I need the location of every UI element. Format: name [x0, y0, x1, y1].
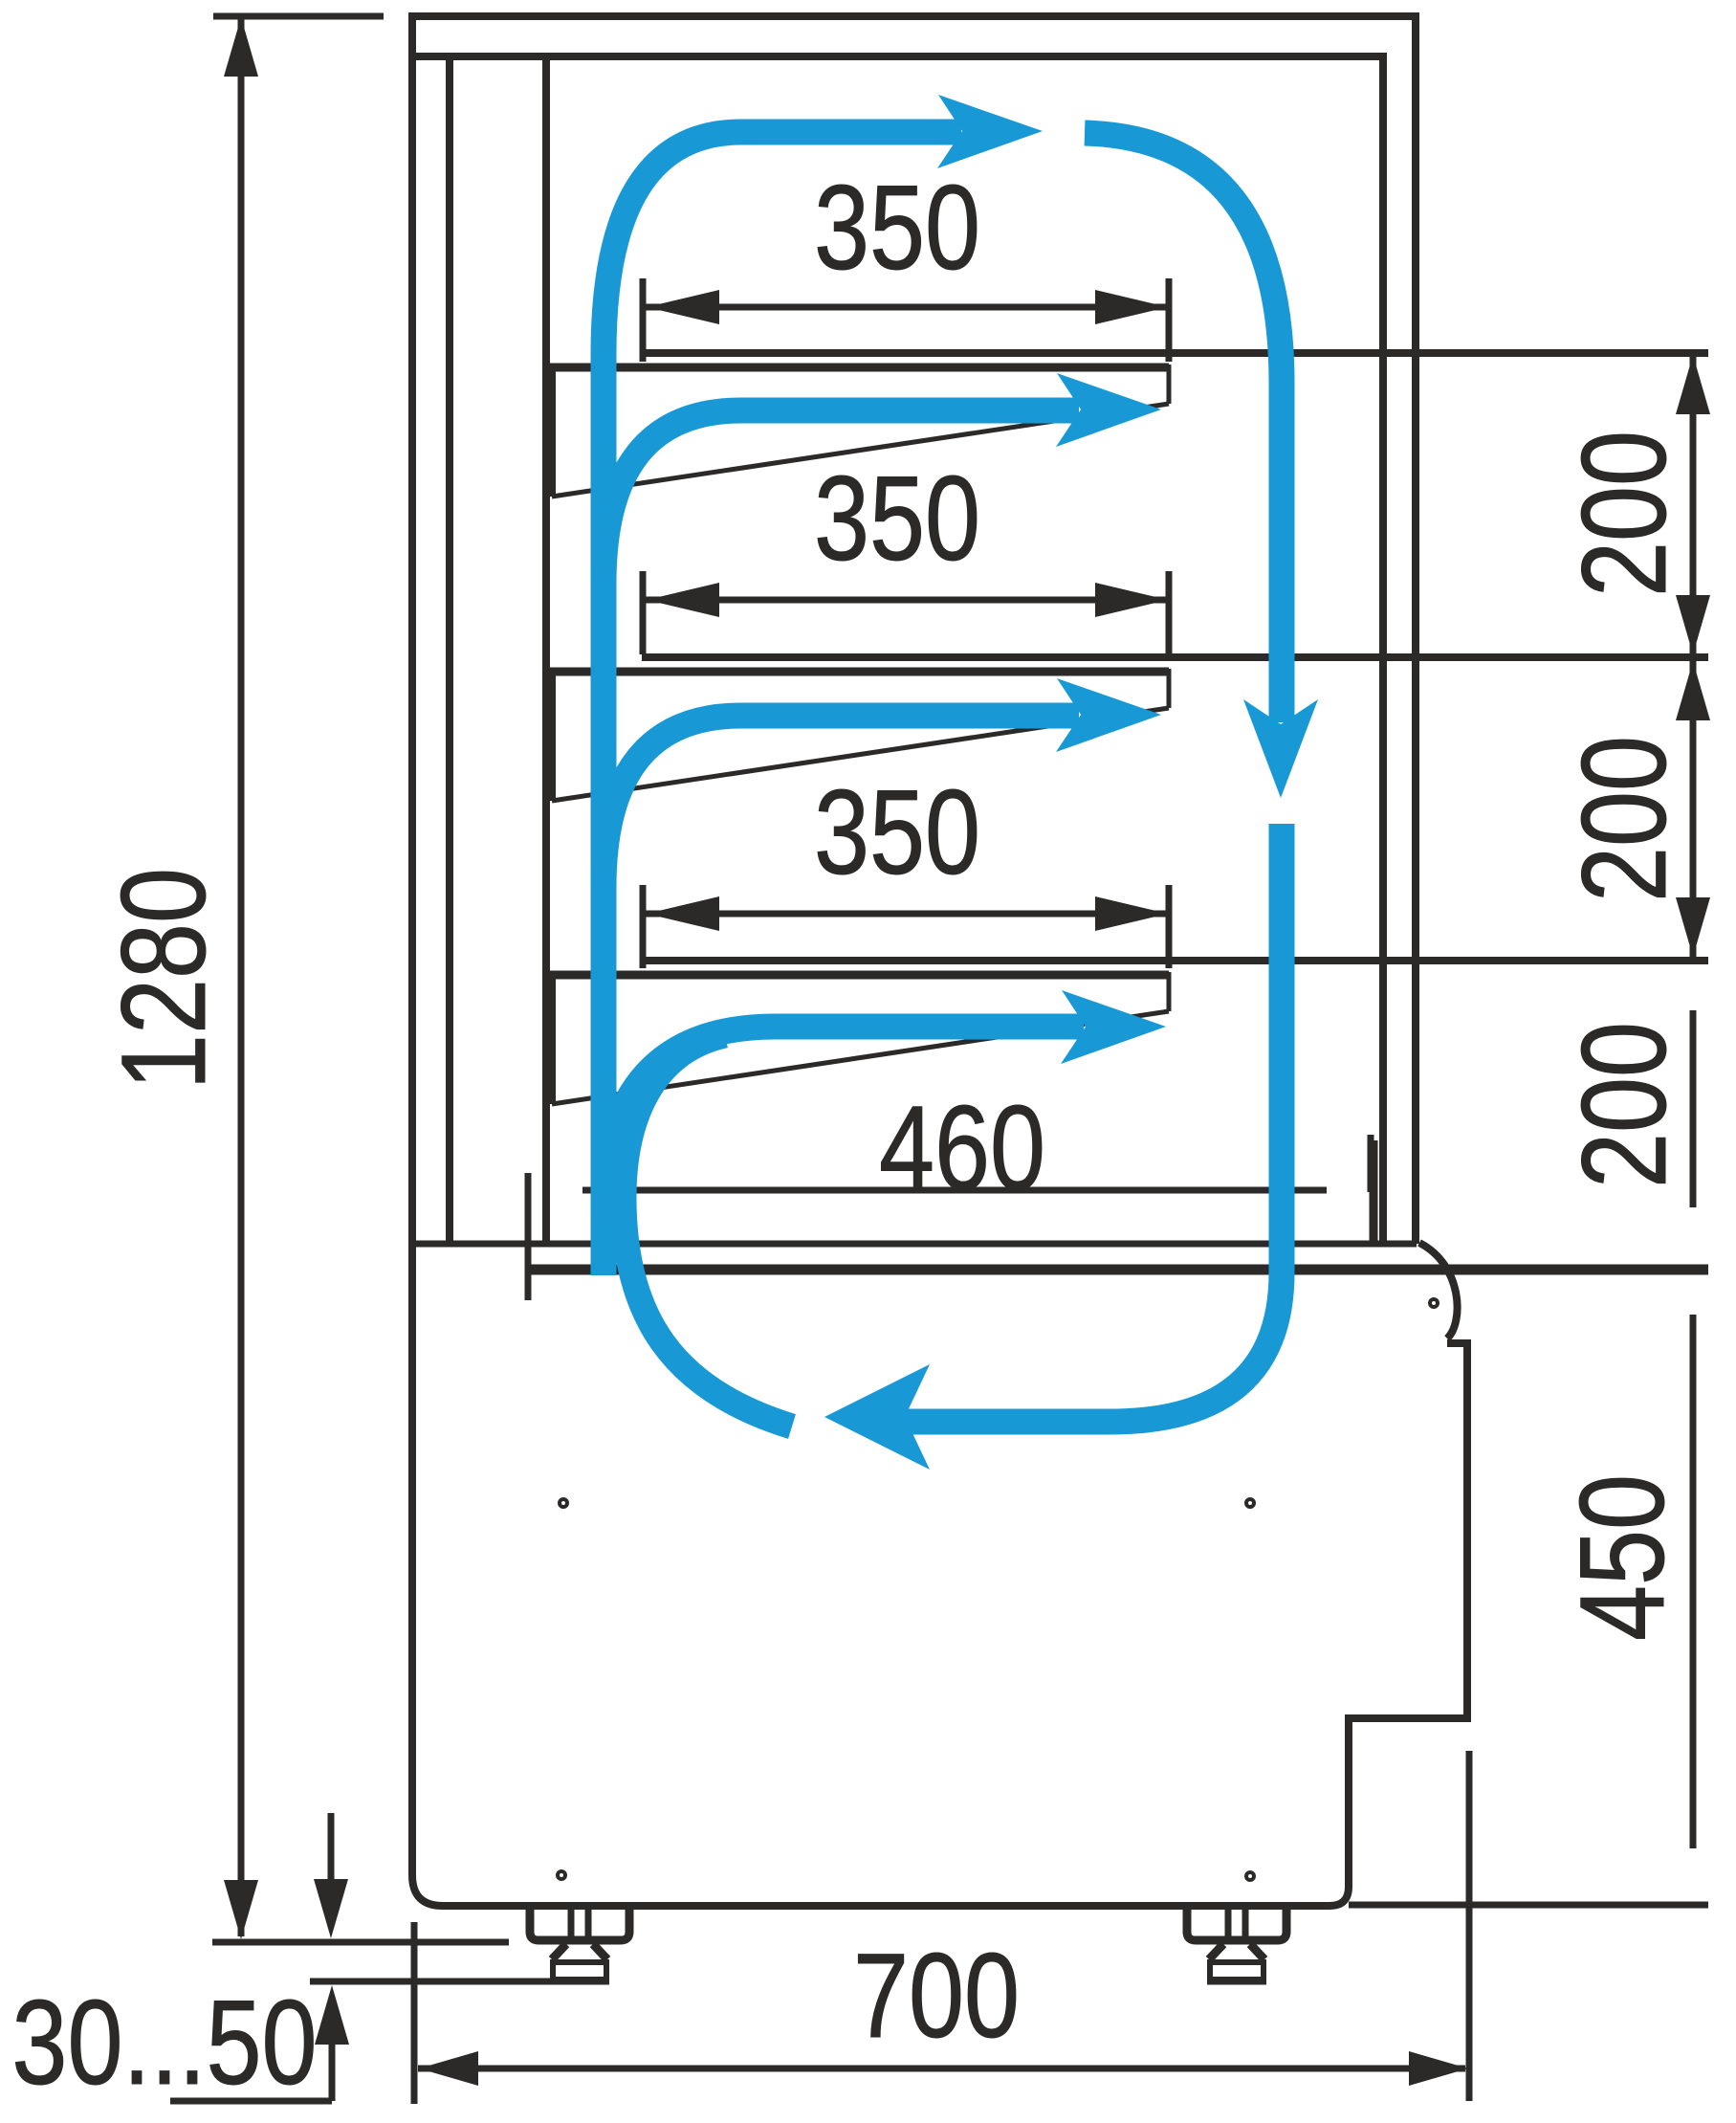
svg-text:700: 700 [853, 1930, 1020, 2063]
svg-text:200: 200 [1558, 1022, 1691, 1188]
svg-text:350: 350 [814, 766, 980, 899]
svg-text:1280: 1280 [98, 868, 231, 1090]
svg-text:200: 200 [1558, 431, 1691, 597]
svg-text:460: 460 [879, 1082, 1045, 1215]
svg-text:200: 200 [1558, 736, 1691, 902]
svg-text:30...50: 30...50 [11, 1977, 317, 2110]
svg-text:350: 350 [814, 162, 980, 295]
svg-text:450: 450 [1556, 1474, 1689, 1641]
svg-text:350: 350 [814, 453, 980, 586]
